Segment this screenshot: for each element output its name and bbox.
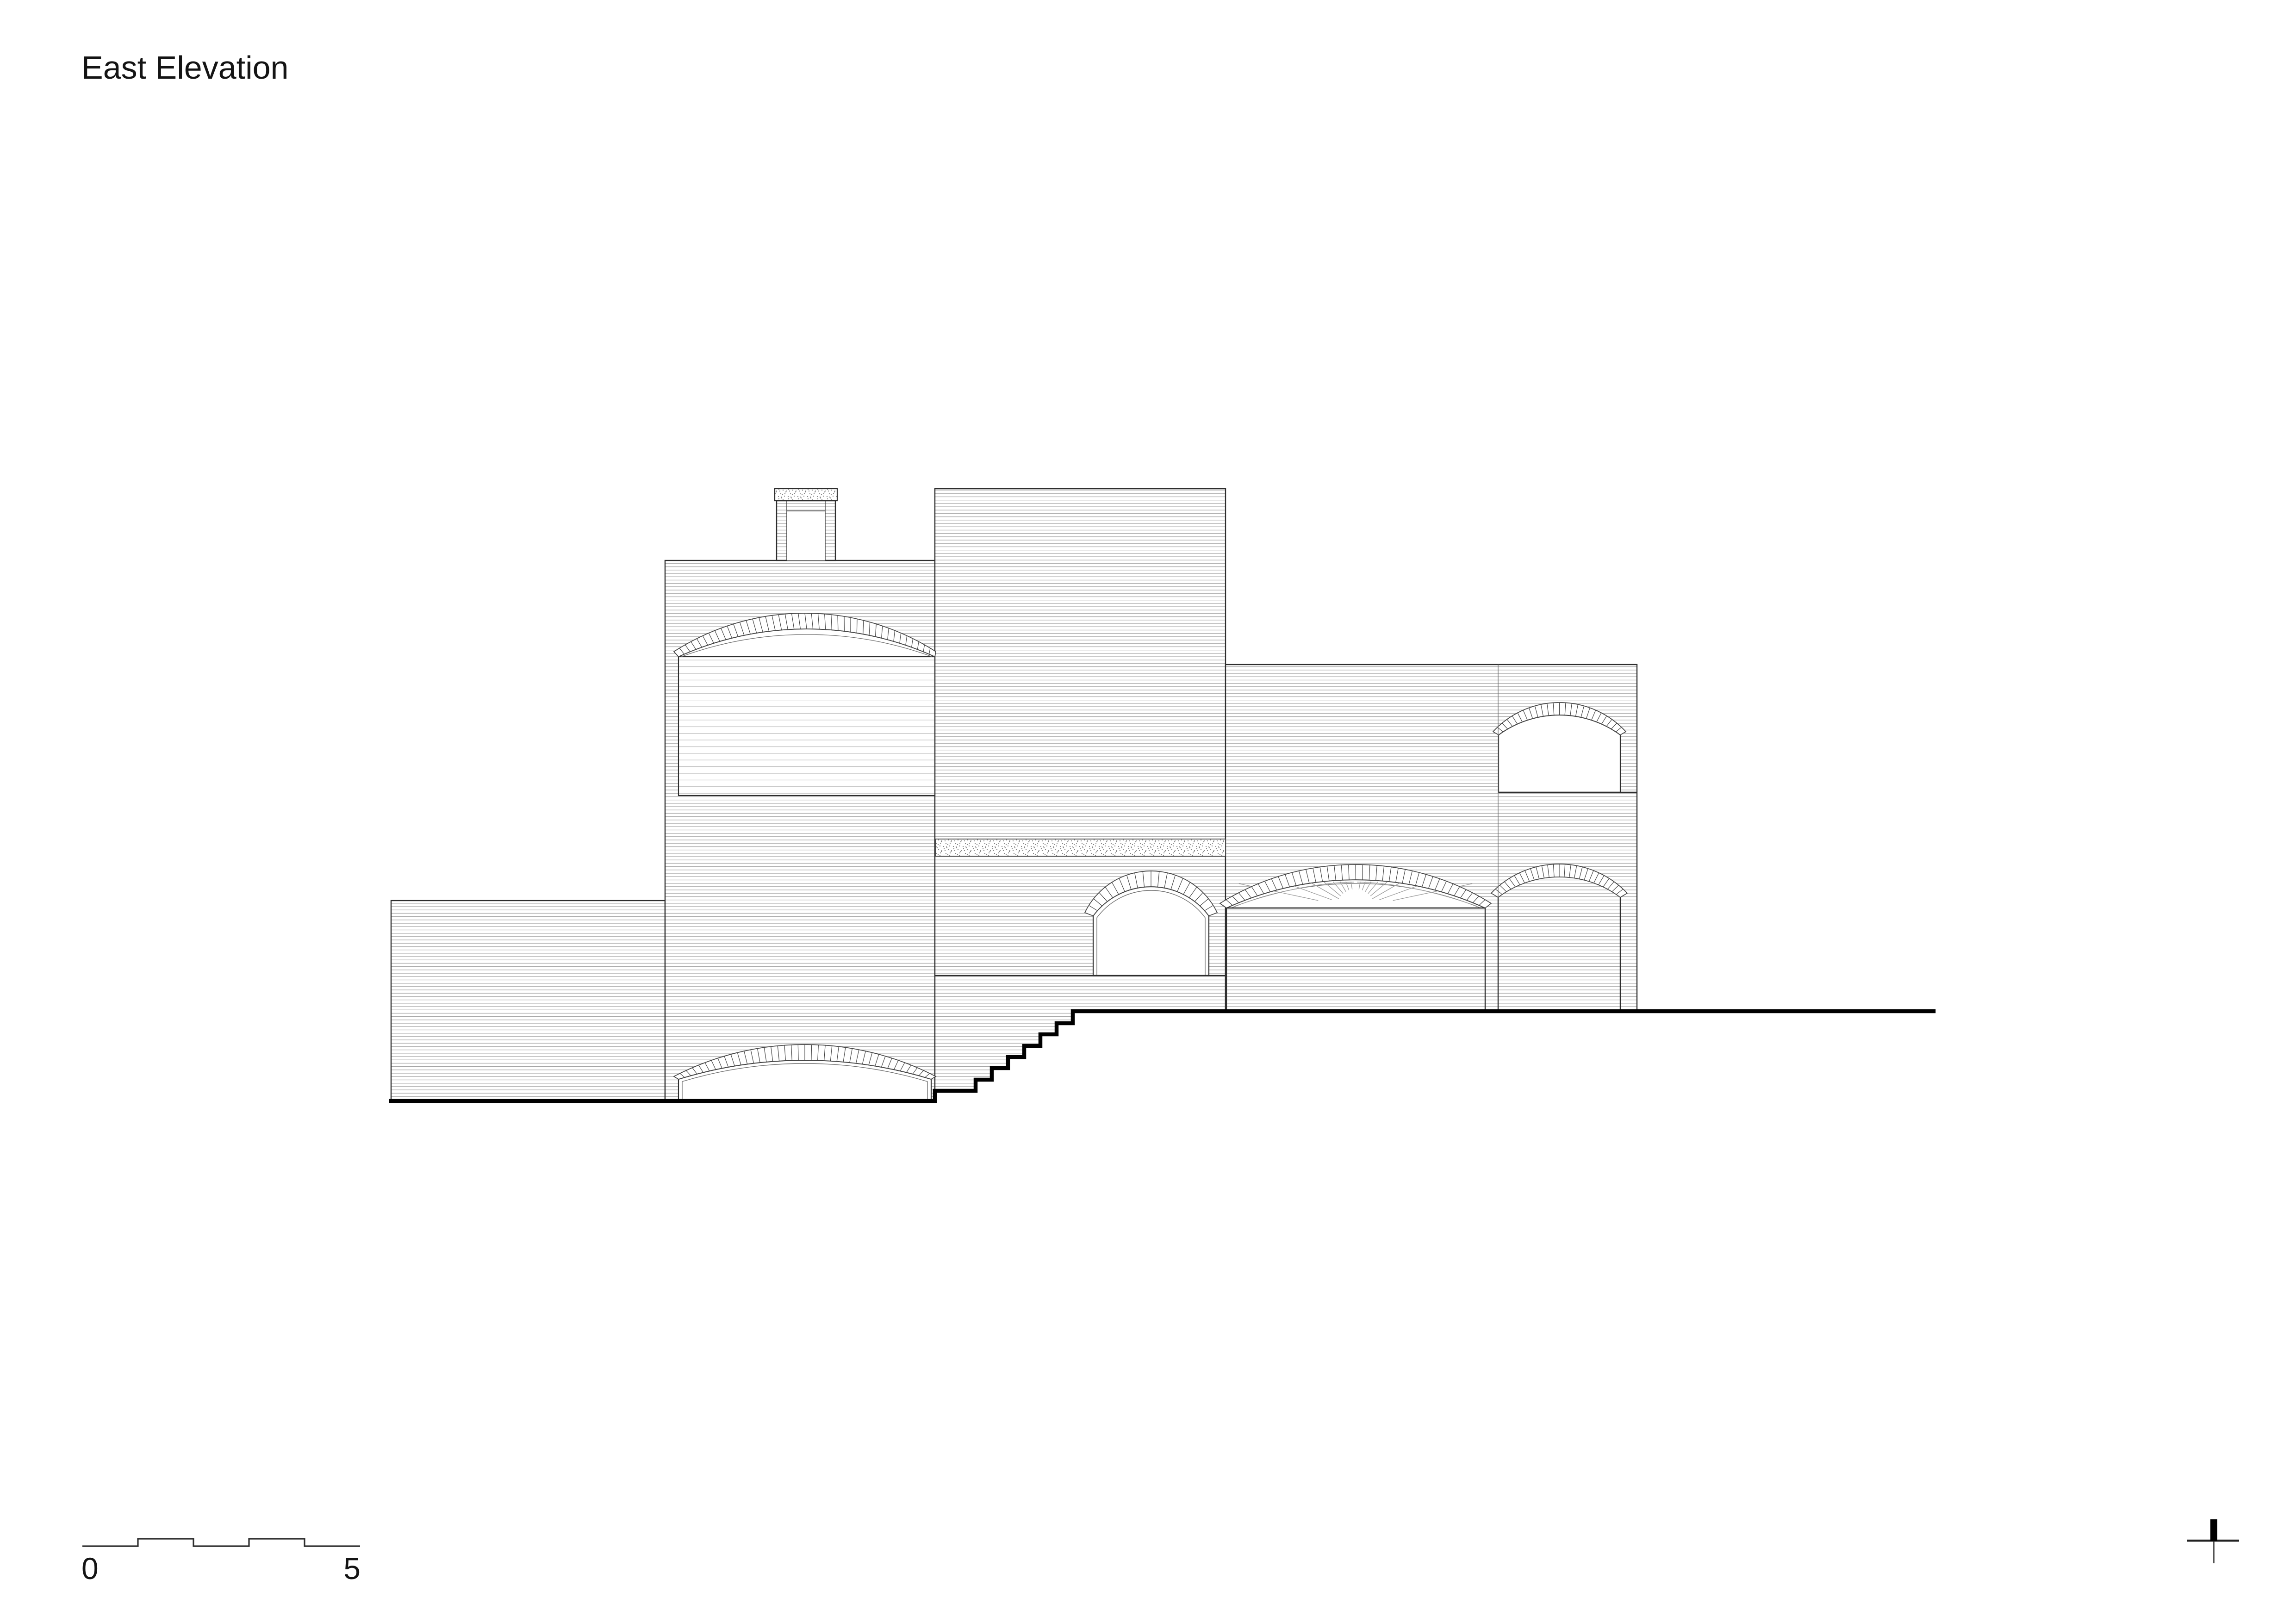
elevation-linework <box>82 489 2239 1563</box>
chimney <box>775 489 837 560</box>
upper-right-window-opening <box>1499 715 1620 792</box>
upper-left-window <box>678 657 935 796</box>
stipple-band <box>936 839 1226 856</box>
drawing-title: East Elevation <box>81 50 288 86</box>
benchmark-flag <box>2210 1519 2217 1541</box>
chimney-cap <box>775 489 837 501</box>
wall-central-block <box>935 489 1226 1091</box>
scale-label-zero: 0 <box>81 1551 99 1586</box>
scale-bar: 0 5 <box>81 1551 361 1586</box>
entrance-door-opening <box>1093 887 1209 976</box>
elevation-sheet: East Elevation 0 5 <box>0 0 2296 1623</box>
wall-left-low-block <box>391 901 665 1101</box>
chimney-flue-panel <box>787 511 825 560</box>
benchmark-marker <box>2187 1519 2239 1563</box>
scale-label-five: 5 <box>343 1551 361 1586</box>
scale-bar-line <box>82 1539 360 1546</box>
